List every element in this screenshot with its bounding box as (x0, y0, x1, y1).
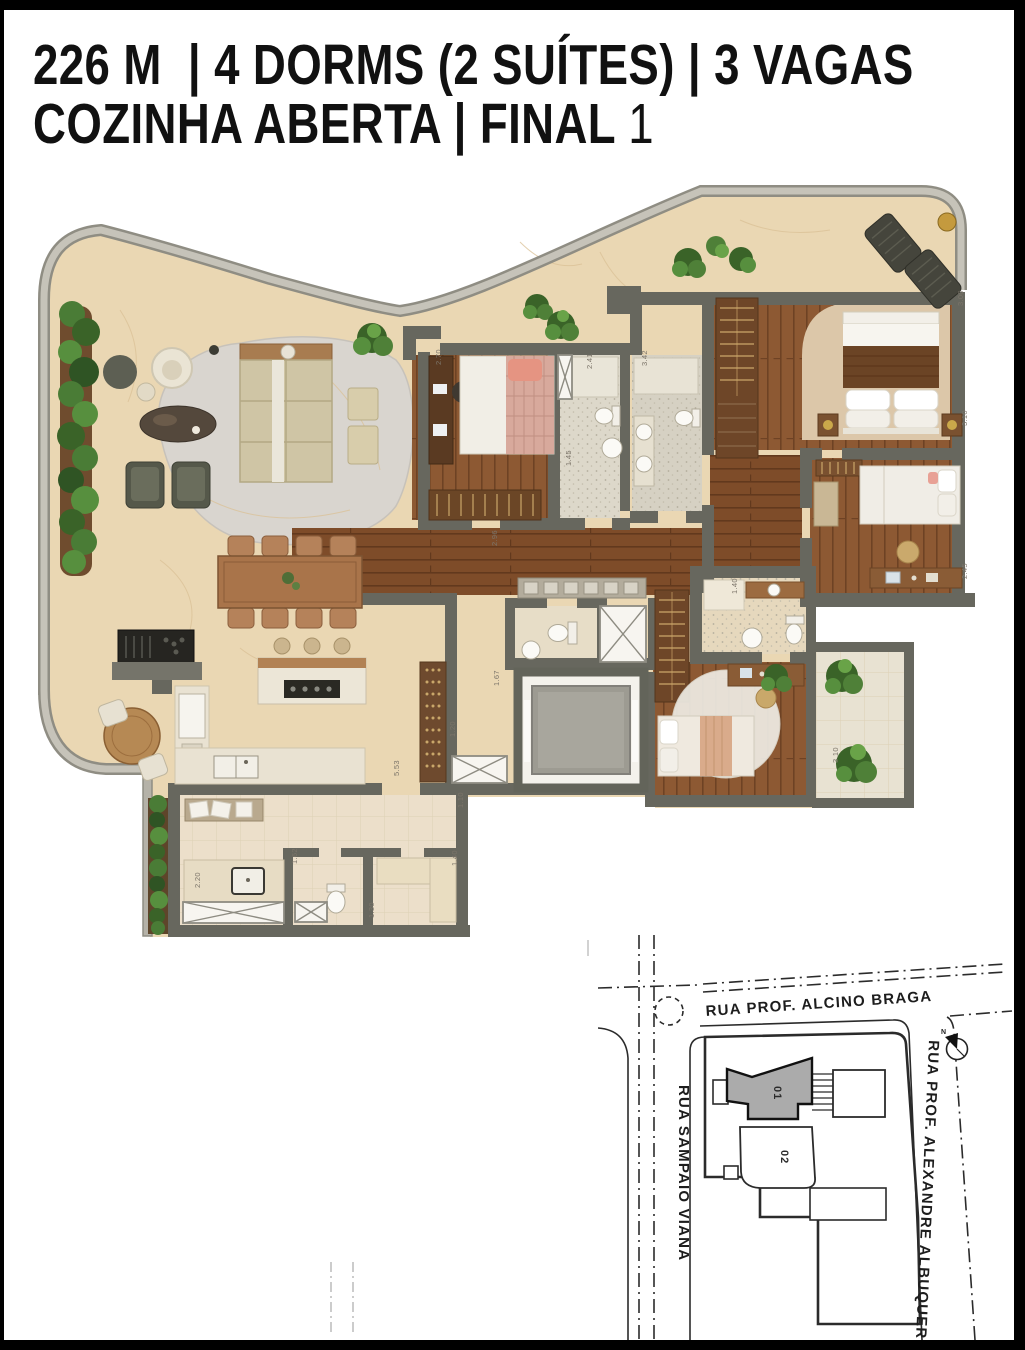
elevator (518, 672, 644, 788)
map-building-02 (740, 1127, 815, 1188)
pouf (348, 426, 378, 464)
pillow (846, 410, 890, 428)
dimension-label: 1.30 (367, 902, 376, 918)
toilet (675, 411, 693, 426)
dimension-label: 2.41 (585, 353, 594, 369)
closet-x (452, 756, 507, 783)
fridge (179, 694, 205, 738)
bar-stools (274, 638, 350, 654)
dimension-label: 1.40 (730, 578, 739, 594)
bench (430, 858, 456, 922)
bedroom-1 (429, 356, 554, 520)
site-map: 01 02 RUA PROF. ALCINO BRAGA RUA SAMPAIO… (598, 935, 1014, 1350)
bed-throw (843, 346, 939, 388)
round-sink (602, 438, 622, 458)
closet-rail (816, 460, 862, 476)
pillow (660, 748, 678, 772)
frame-border-right (1014, 0, 1025, 1350)
pillow (894, 390, 938, 410)
pillow (846, 390, 890, 410)
pantry-wine-rack (420, 662, 446, 782)
pillow (894, 410, 938, 428)
pillow (928, 472, 938, 484)
bed-throw (700, 716, 732, 776)
table-lamp (281, 345, 295, 359)
dimension-label: 2.96 (490, 530, 499, 546)
round-sink (742, 628, 762, 648)
kitchen-counter (175, 748, 365, 784)
dimension-label: 5.53 (392, 760, 401, 776)
sink (636, 456, 652, 472)
dimension-label: 1.62 (290, 848, 299, 864)
pillow (660, 720, 678, 744)
compass-north-label: N (941, 1029, 946, 1036)
sink (636, 424, 652, 440)
bbq-grill (118, 630, 194, 664)
bed-headboard (843, 312, 939, 324)
sink (768, 584, 780, 596)
dimension-label: 1.40 (450, 850, 459, 866)
side-table (137, 383, 155, 401)
dimension-label: 3.10 (831, 747, 840, 763)
dimension-label: 3.42 (640, 350, 649, 366)
side-table (938, 213, 956, 231)
map-structure (833, 1070, 885, 1117)
toilet (548, 625, 568, 642)
floor-lamp (209, 345, 219, 355)
toilet (595, 408, 613, 424)
frame-border-left (0, 0, 4, 1350)
round-sink (522, 641, 540, 659)
faint-street-remnant (331, 1262, 353, 1336)
dimension-label: 1.67 (492, 670, 501, 686)
dimension-label: 3.10 (960, 410, 969, 426)
dimension-label: 3.00 (956, 290, 965, 306)
pillow (938, 494, 956, 516)
frame-border-top (0, 0, 1025, 10)
floorplan-and-map-graphic: 2.702.413.421.452.963.003.102.451.401.67… (0, 0, 1025, 1350)
toilet (786, 624, 802, 644)
toilet (327, 891, 345, 913)
street-name-left: RUA SAMPAIO VIANA (675, 1085, 692, 1261)
closet-x (183, 902, 284, 923)
dimension-label: 2.70 (434, 349, 443, 365)
sofa-throw (272, 360, 284, 482)
dresser (814, 482, 838, 526)
flyer-page: 226 M | 4 DORMS (2 SUÍTES) | 3 VAGAS COZ… (0, 0, 1025, 1350)
stairs (600, 606, 646, 662)
pillow (508, 359, 542, 381)
desk-chair (897, 541, 919, 563)
map-building-01-label: 01 (771, 1086, 783, 1100)
dimension-label: 2.20 (193, 872, 202, 888)
hedge-service (148, 795, 168, 935)
dimension-label: 1.10 (456, 792, 465, 808)
pillow (938, 470, 956, 492)
dimension-label: 2.45 (960, 563, 969, 579)
closet-x (295, 902, 327, 922)
map-structure (810, 1188, 886, 1220)
map-building-02-label: 02 (778, 1150, 790, 1164)
round-ottoman (103, 355, 137, 389)
dimension-label: 1.20 (448, 721, 457, 737)
dimension-label: 1.45 (564, 450, 573, 466)
frame-border-bottom (0, 1340, 1025, 1350)
desk-stool (756, 688, 776, 708)
pouf (348, 388, 378, 420)
coffee-table (140, 406, 216, 442)
desk (429, 356, 453, 464)
